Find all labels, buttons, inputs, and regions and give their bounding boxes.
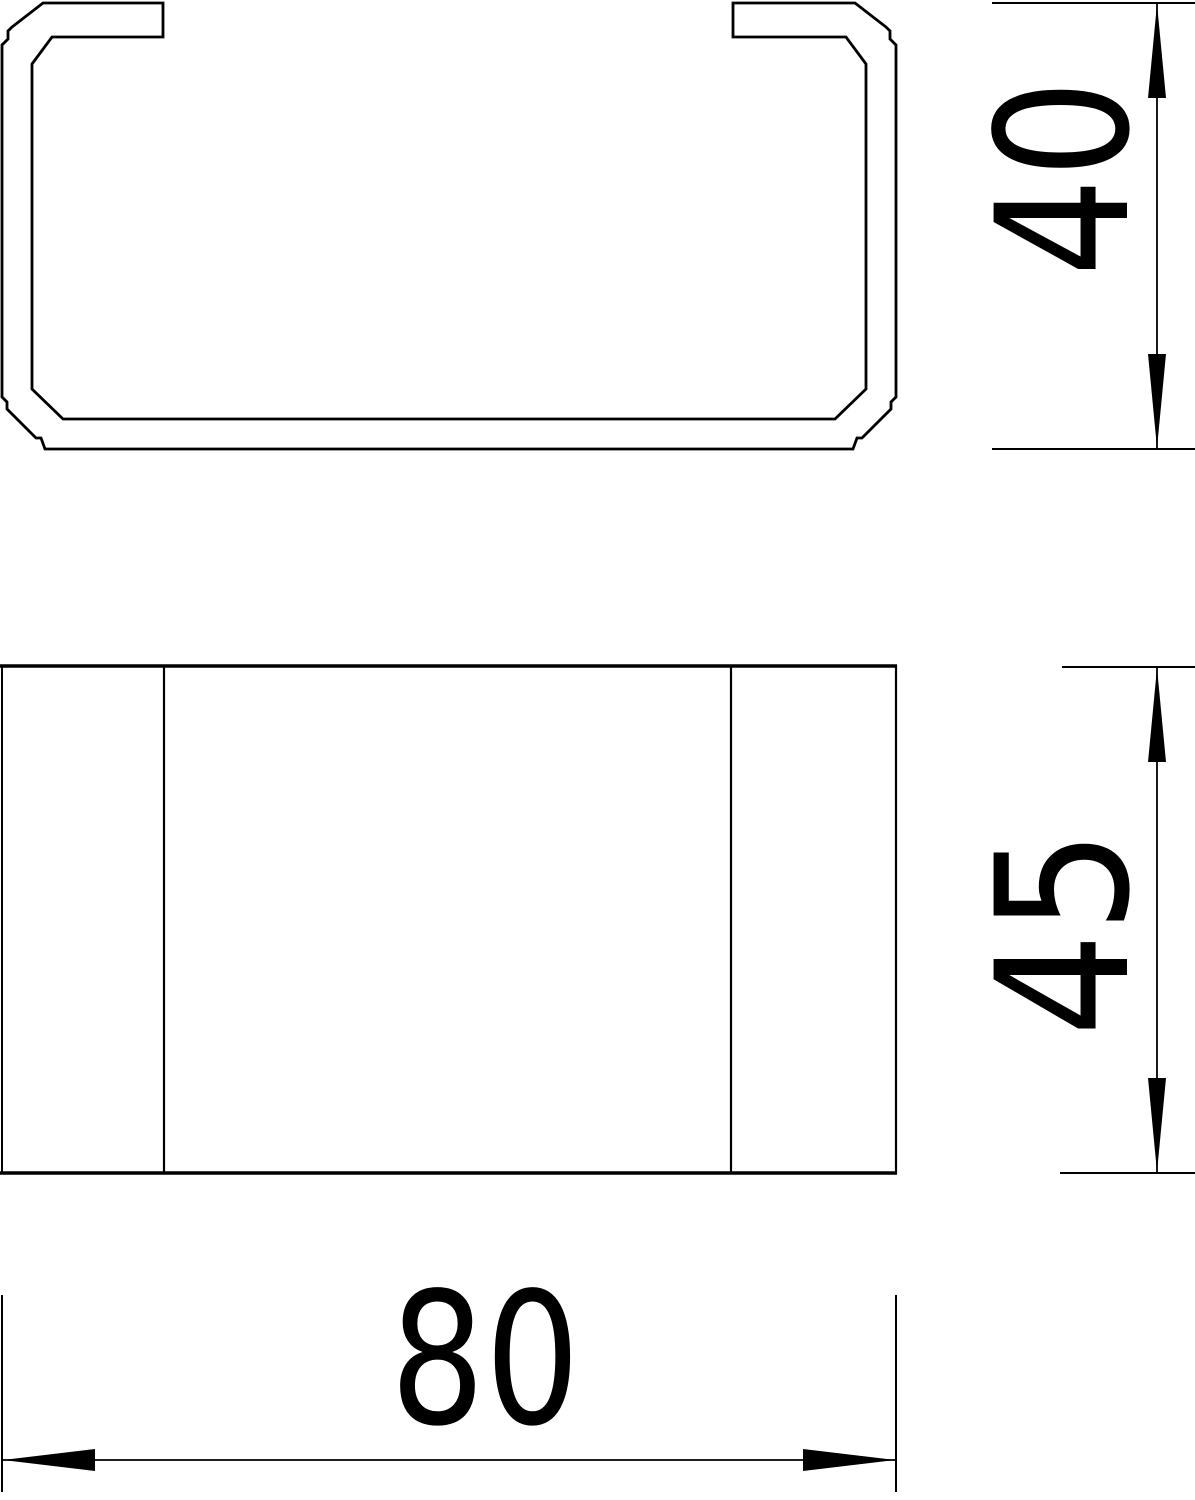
dimension-width: 80 [2,1254,896,1492]
profile-outline [2,3,896,449]
dimension-profile-height: 40 [958,3,1195,449]
drawing-canvas: 40 45 80 [0,0,1195,1500]
arrowhead-right-icon [803,1449,895,1471]
dimension-label-front-height: 45 [958,830,1171,1037]
profile-cross-section-view [2,3,896,449]
dimension-drawing-svg: 40 45 80 [0,0,1195,1500]
dimension-front-height: 45 [958,667,1195,1173]
arrowhead-left-icon [3,1449,95,1471]
dimension-label-profile-height: 40 [958,80,1171,277]
dimension-label-width: 80 [390,1254,580,1467]
arrowhead-down-icon [1148,354,1166,448]
arrowhead-up-icon [1148,668,1166,762]
front-view [0,665,897,1174]
arrowhead-down-icon [1148,1078,1166,1172]
